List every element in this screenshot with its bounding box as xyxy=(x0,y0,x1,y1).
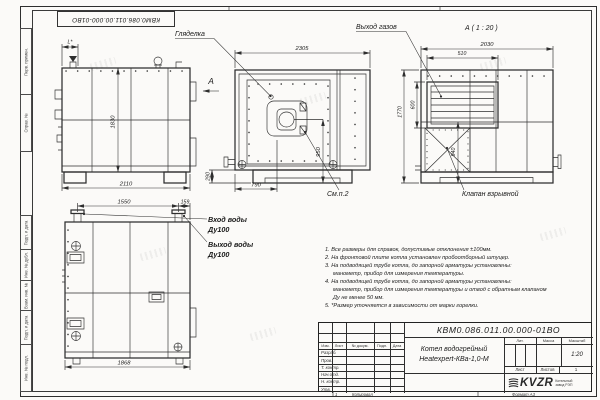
product-name: Котел водогрейный Heatexpert-КВа-1,0-М xyxy=(404,337,504,373)
see-note-leader xyxy=(305,132,339,190)
leader-dot xyxy=(446,147,448,149)
front-plate xyxy=(239,70,366,170)
boiler-body-outline xyxy=(65,222,190,358)
water-outlet-dn: Ду100 xyxy=(207,250,229,259)
inspection-door-bottom xyxy=(67,318,84,329)
col-data: Дата xyxy=(390,342,404,349)
lit-label: Лит. xyxy=(504,337,536,344)
grid-line xyxy=(319,386,404,387)
misc-fittings xyxy=(73,308,196,364)
note-line: манометр, прибор для измерения температу… xyxy=(325,286,591,294)
side-stubs xyxy=(415,155,561,170)
dim-pipe-span: 1550 xyxy=(118,200,132,206)
top-fittings xyxy=(154,62,182,68)
scale-value: 1:20 xyxy=(561,344,593,366)
dim-valve-axis: 940 xyxy=(451,148,457,157)
sheet-label: Лист xyxy=(504,366,536,373)
dim-width: 2030 xyxy=(480,42,495,48)
format-label: Формат А3 xyxy=(512,392,535,397)
row-tkontr: Т. контр. xyxy=(319,365,340,370)
grid-line xyxy=(374,323,375,393)
sheets-value: 1 xyxy=(559,366,593,373)
pipe-flanges xyxy=(71,210,185,214)
row-prov: Пров. xyxy=(319,358,332,363)
explosion-valve-panel xyxy=(425,128,470,172)
leader-dot xyxy=(83,213,85,215)
dim-height: 1830 xyxy=(111,115,117,129)
see-note-label: См.п.2 xyxy=(327,191,349,198)
ext-lines xyxy=(235,50,370,68)
safety-valve-icon xyxy=(69,56,77,62)
water-inlet-label: Вход воды xyxy=(208,215,248,224)
grid-line xyxy=(515,344,516,366)
dim-width: 1868 xyxy=(118,361,132,367)
pipe-stubs xyxy=(74,214,182,223)
gas-outlet-leader xyxy=(356,32,441,97)
view-arrow-label: А xyxy=(207,76,214,86)
dim-width: 2305 xyxy=(295,46,310,52)
burner-plate xyxy=(267,101,307,136)
spring-icon xyxy=(507,377,520,390)
safety-valve-base xyxy=(70,62,76,68)
scale-label: Масштаб xyxy=(561,337,593,344)
col-podp: Подп. xyxy=(374,342,390,349)
hatch-right xyxy=(149,292,164,302)
front-base-step xyxy=(265,178,340,183)
rear-base-step xyxy=(440,178,533,184)
burner-hole xyxy=(279,112,294,127)
technical-notes: 1. Все размеры для справок, допустимые о… xyxy=(325,246,591,310)
note-line: 1. Все размеры для справок, допустимые о… xyxy=(325,246,591,254)
note-line: 4. На подводящей трубе котла, до запорно… xyxy=(325,278,591,286)
dim-burner-axis: 950 xyxy=(316,146,322,156)
title-block: КВМ0.086.011.00.000-01ВО Котел водогрейн… xyxy=(318,322,592,392)
front-base xyxy=(253,170,352,183)
col-ndokum: № докум. xyxy=(346,342,374,349)
water-leaders xyxy=(84,214,207,242)
view-a-title: А ( 1 : 20 ) xyxy=(464,25,498,32)
leader-dot xyxy=(304,131,306,133)
water-inlet-dn: Ду100 xyxy=(207,225,229,234)
dim-pipe-offset: 159 xyxy=(181,200,190,206)
grid-line xyxy=(390,323,391,393)
manufacturer-logo: KVZR Котельный завод РЭП xyxy=(504,373,593,393)
left-side-fittings xyxy=(55,90,62,150)
leader-dot xyxy=(440,95,442,97)
product-name-line2: Heatexpert-КВа-1,0-М xyxy=(419,355,488,365)
grid-line xyxy=(525,344,526,366)
ext-lines xyxy=(209,170,251,183)
note-line: Ду не менее 50 мм. xyxy=(325,294,591,302)
bottom-zone-number: 1 xyxy=(335,392,337,397)
product-name-line1: Котел водогрейный xyxy=(421,345,488,355)
view-front: 2305 950 790 290 Гляделка См.п.2 xyxy=(175,30,370,198)
dim-vent-height: 600 xyxy=(411,101,417,110)
explosion-valve-label: Клапан взрывной xyxy=(462,190,519,198)
designation: КВМ0.086.011.00.000-01ВО xyxy=(404,323,593,337)
bolt-dots xyxy=(249,78,355,164)
anchor-crosses xyxy=(239,161,337,168)
note-line: 2. На фронтовой плите котла установлен п… xyxy=(325,254,591,262)
dim-burner-offset: 790 xyxy=(251,183,261,189)
row-utv: Утв. xyxy=(319,387,331,392)
dim-height: 1770 xyxy=(398,106,404,118)
leader-dot xyxy=(183,215,185,217)
flange-tabs xyxy=(300,103,306,134)
grid-line xyxy=(346,323,347,393)
grid-line xyxy=(319,333,404,334)
dim-width: 2110 xyxy=(119,182,133,188)
panel-seams xyxy=(65,222,190,358)
sight-glass-label: Гляделка xyxy=(175,30,205,38)
water-outlet-label: Выход воды xyxy=(208,240,254,249)
dim-vent-width: 510 xyxy=(458,51,467,57)
note-line: 3. На подводящей трубе котла, до запорно… xyxy=(325,262,591,270)
col-list: Лист xyxy=(332,342,346,349)
logo-caption: Котельный завод РЭП xyxy=(555,379,572,387)
left-stub-flange xyxy=(224,157,235,167)
row-nachotd: Нач.отд. xyxy=(319,372,339,377)
vent-fitting xyxy=(154,57,162,65)
dim-base-height: 290 xyxy=(206,172,212,182)
copied-by-label: Копировал xyxy=(352,392,373,397)
sight-glass-leader xyxy=(175,39,270,96)
view-side-left: L* 1830 2110 А xyxy=(55,40,219,192)
right-side-brackets xyxy=(190,82,196,166)
panel-seams xyxy=(62,68,190,172)
drawing-sheet: Перв. примен. Справ. № Подп. и дата Инв.… xyxy=(0,0,600,400)
note-line: 5. *Размер уточняется в зависимости от м… xyxy=(325,302,591,310)
row-razrab: Разраб. xyxy=(319,350,337,355)
sheets-label: Листов xyxy=(536,366,559,373)
ext-lines xyxy=(421,46,553,68)
front-outline xyxy=(235,70,370,170)
note-line: манометр, прибор для измерения температу… xyxy=(325,270,591,278)
leader-dot xyxy=(269,95,271,97)
logo-text: KVZR xyxy=(520,377,553,389)
louver-slats xyxy=(431,86,494,124)
mass-label: Масса xyxy=(536,337,561,344)
inspection-door-top xyxy=(67,252,84,263)
row-nkontr: Н. контр. xyxy=(319,379,340,384)
col-izm: Изм. xyxy=(319,342,332,349)
view-a: А ( 1 : 20 ) Выход газов 2030 510 600 xyxy=(356,23,561,198)
view-side-bottom: 1550 159 1868 Вход воды Ду100 Выход воды… xyxy=(62,200,254,371)
dim-top-offset: L* xyxy=(68,40,74,46)
gas-outlet-label: Выход газов xyxy=(356,23,397,31)
